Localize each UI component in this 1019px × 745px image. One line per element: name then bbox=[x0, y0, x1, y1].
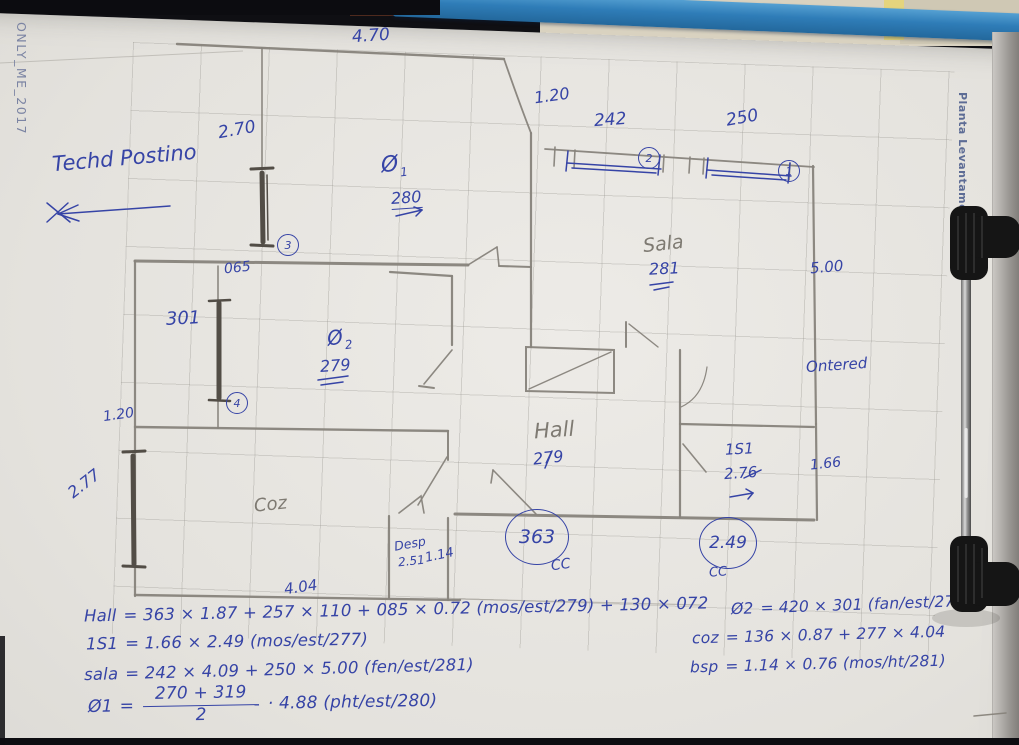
clip-bottom-handle bbox=[950, 536, 1019, 612]
clipboard-clip bbox=[0, 0, 1019, 745]
clip-rod-glint bbox=[965, 428, 968, 498]
clip-metal-rod bbox=[961, 262, 971, 562]
photo-dark-edge-left bbox=[0, 636, 5, 745]
photo-of-floor-plan-sketch: ONLY_ME_2017 Planta Levantamento Techd P… bbox=[0, 0, 1019, 745]
clip-top-handle bbox=[950, 206, 1019, 280]
photo-dark-edge-bottom bbox=[0, 738, 1019, 745]
